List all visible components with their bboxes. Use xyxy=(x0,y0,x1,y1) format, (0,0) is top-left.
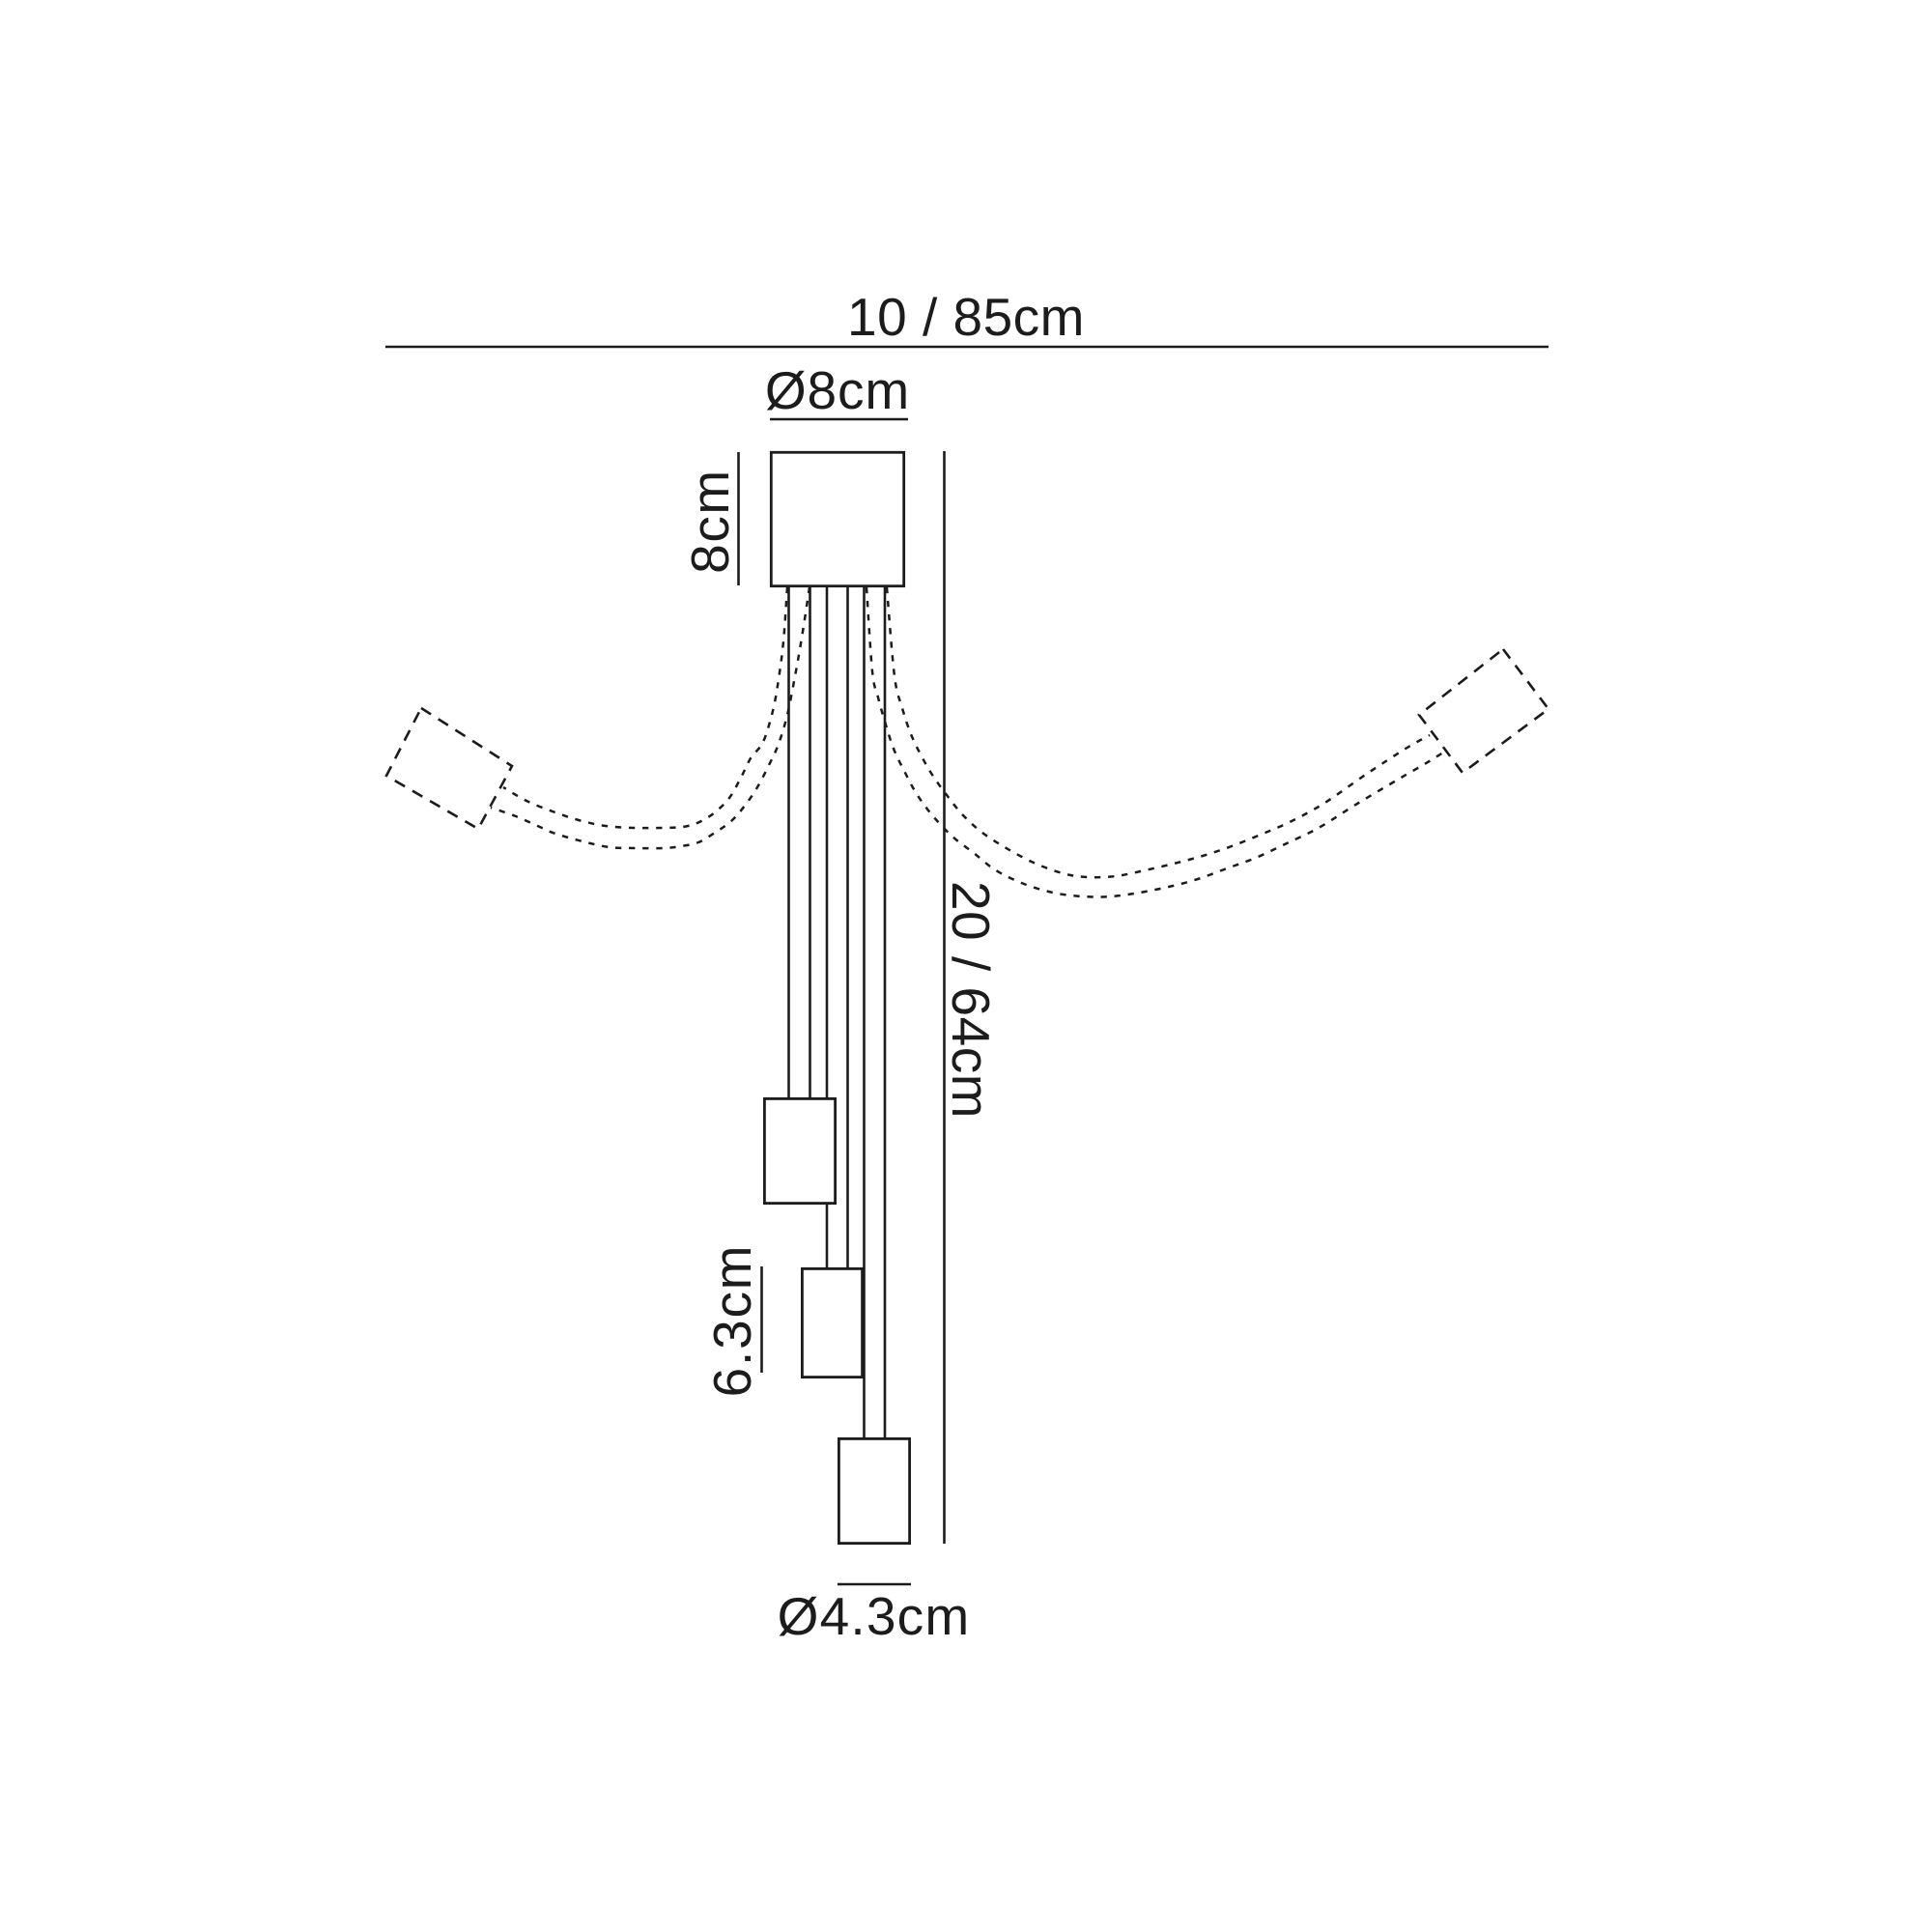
svg-text:Ø4.3cm: Ø4.3cm xyxy=(778,1586,971,1646)
svg-text:Ø8cm: Ø8cm xyxy=(765,360,910,420)
svg-text:8cm: 8cm xyxy=(680,469,740,574)
svg-text:6.3cm: 6.3cm xyxy=(702,1244,762,1398)
svg-text:20 / 64cm: 20 / 64cm xyxy=(941,881,1001,1119)
svg-text:10 / 85cm: 10 / 85cm xyxy=(847,287,1085,347)
